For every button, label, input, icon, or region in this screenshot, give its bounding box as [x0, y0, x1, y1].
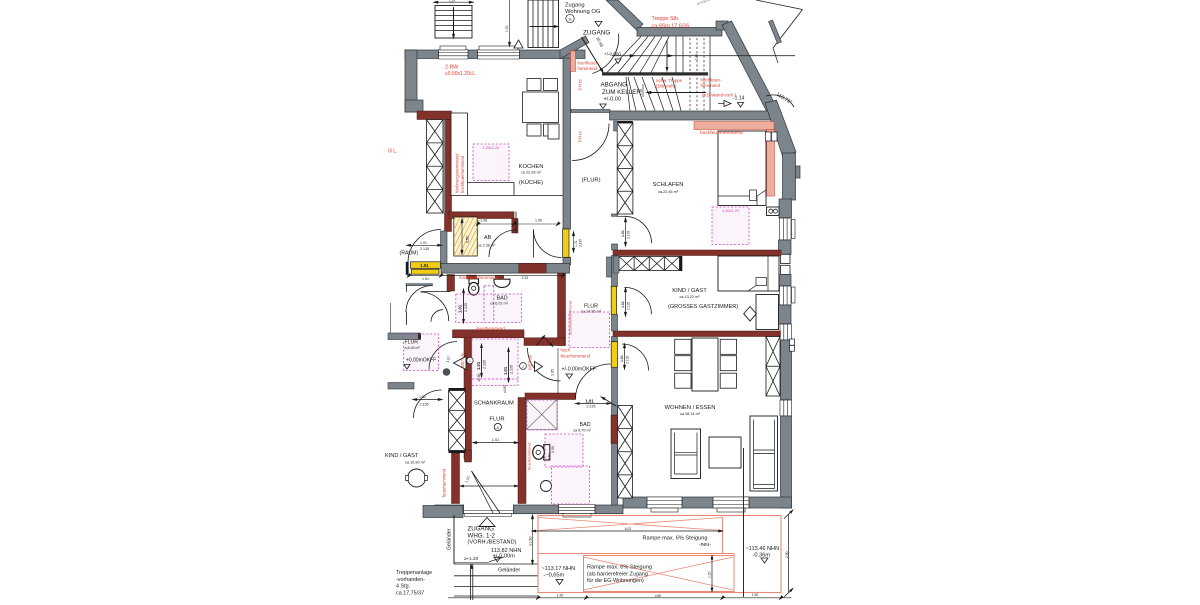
svg-text:-neu-: -neu-	[699, 542, 711, 548]
svg-text:≥1.50: ≥1.50	[528, 537, 532, 546]
svg-text:WET ds: WET ds	[460, 353, 465, 368]
svg-text:1.01: 1.01	[458, 304, 463, 313]
svg-text:6.02: 6.02	[625, 527, 632, 531]
svg-text:A: A	[497, 426, 500, 430]
svg-text:feuerhemmend: feuerhemmend	[477, 326, 506, 331]
svg-text:1.20x1.20: 1.20x1.20	[722, 209, 739, 213]
svg-text:1.65: 1.65	[551, 369, 555, 376]
svg-text:hochfeuer-: hochfeuer-	[701, 78, 723, 83]
svg-text:0i L.: 0i L.	[388, 149, 397, 155]
svg-text:KIND / GAST: KIND / GAST	[672, 288, 707, 294]
svg-text:-~0,65m: -~0,65m	[544, 573, 565, 579]
svg-text:1.51: 1.51	[466, 236, 470, 243]
svg-text:1.50: 1.50	[505, 25, 509, 32]
svg-text:1.01: 1.01	[574, 240, 578, 247]
svg-text:Wohnungstrennwand: Wohnungstrennwand	[455, 153, 460, 193]
svg-text:1.01: 1.01	[419, 395, 426, 399]
svg-text:1.01: 1.01	[621, 230, 625, 237]
svg-text:2.RW: 2.RW	[445, 65, 459, 71]
svg-text:BAD: BAD	[580, 422, 591, 428]
svg-text:ca.9Stg.17.6/26: ca.9Stg.17.6/26	[652, 24, 690, 30]
svg-text:hemmend: hemmend	[701, 83, 721, 88]
svg-text:+/-0.00: +/-0.00	[604, 96, 622, 102]
svg-text:+/-0.000: +/-0.000	[604, 52, 621, 57]
svg-text:2.135: 2.135	[627, 302, 631, 310]
svg-text:SCHLAFEN: SCHLAFEN	[653, 182, 684, 188]
svg-text:FH rs: FH rs	[578, 78, 583, 90]
svg-text:ca 14.95 m²: ca 14.95 m²	[581, 310, 602, 314]
svg-text:WHG. 1-2: WHG. 1-2	[468, 532, 496, 539]
svg-text:≥0.90x1.20i.L.: ≥0.90x1.20i.L.	[445, 71, 476, 77]
svg-text:2: 2	[522, 365, 524, 369]
svg-text:1.01: 1.01	[503, 366, 508, 375]
svg-text:3.50: 3.50	[551, 446, 555, 453]
svg-text:3.50: 3.50	[548, 453, 552, 460]
svg-text:1.01: 1.01	[586, 398, 595, 403]
svg-text:FLUR: FLUR	[405, 340, 419, 346]
svg-text:ZUGANG: ZUGANG	[583, 30, 610, 37]
svg-text:feuerhemmend: feuerhemmend	[561, 354, 591, 359]
svg-text:~113.17 NHN: ~113.17 NHN	[542, 566, 576, 572]
svg-text:ca.28,14 m²: ca.28,14 m²	[680, 412, 701, 416]
svg-text:feuerhemmend: feuerhemmend	[527, 443, 532, 470]
svg-text:ca.13,22 m²: ca.13,22 m²	[679, 295, 700, 299]
svg-text:ca 9,70 m²: ca 9,70 m²	[573, 429, 592, 433]
svg-text:Rampe max. 6% Steigung: Rampe max. 6% Steigung	[587, 565, 652, 571]
svg-text:KOCHEN: KOCHEN	[519, 164, 544, 170]
svg-text:1.14: 1.14	[695, 54, 699, 60]
svg-text:≥0.80: ≥0.80	[503, 385, 507, 393]
svg-text:ca.6.02 m²: ca.6.02 m²	[490, 302, 509, 306]
svg-text:11: 11	[568, 17, 572, 21]
svg-text:Treppe Stb.: Treppe Stb.	[652, 16, 680, 22]
svg-text:1.01: 1.01	[621, 301, 625, 308]
svg-text:a.8.28 m²: a.8.28 m²	[405, 346, 421, 350]
svg-text:ca 22.28 m²: ca 22.28 m²	[521, 171, 542, 175]
svg-text:1.51: 1.51	[422, 277, 429, 281]
svg-text:~1.96: ~1.96	[478, 219, 487, 223]
svg-text:1.01: 1.01	[420, 263, 429, 268]
svg-text:(GROSSES GASTZIMMER): (GROSSES GASTZIMMER)	[668, 304, 738, 310]
svg-text:Zugang: Zugang	[565, 3, 585, 9]
svg-text:~113.46 NHN: ~113.46 NHN	[746, 546, 780, 552]
svg-text:(RAUM): (RAUM)	[400, 251, 419, 257]
svg-text:1.50: 1.50	[557, 593, 564, 597]
svg-text:AB: AB	[484, 235, 492, 241]
svg-text:2.135: 2.135	[464, 303, 468, 312]
svg-text:FLUR: FLUR	[489, 417, 504, 423]
svg-text:hemmend: hemmend	[578, 66, 598, 71]
svg-text:2.135: 2.135	[483, 360, 487, 369]
svg-text:ca 2.36 m²: ca 2.36 m²	[478, 244, 497, 248]
svg-text:≥+1.20: ≥+1.20	[464, 556, 479, 561]
svg-text:2.50: 2.50	[785, 551, 789, 558]
svg-text:(KÜCHE): (KÜCHE)	[519, 179, 543, 186]
svg-text:1.01: 1.01	[420, 241, 427, 245]
svg-text:+/-0.00mOKFF: +/-0.00mOKFF	[562, 367, 596, 373]
svg-text:(FLUR): (FLUR)	[582, 178, 601, 184]
svg-text:2.135: 2.135	[587, 405, 596, 409]
svg-text:1: 1	[469, 359, 471, 363]
svg-text:Treppenanlage: Treppenanlage	[396, 570, 432, 576]
svg-text:ca.17,75/37: ca.17,75/37	[396, 590, 424, 596]
svg-text:ca.10,90 m²: ca.10,90 m²	[405, 461, 426, 465]
svg-text:hochfeuerhemmend: hochfeuerhemmend	[460, 155, 465, 193]
svg-text:1.50: 1.50	[535, 219, 542, 223]
svg-text:1.01: 1.01	[476, 361, 481, 370]
svg-text:2.135: 2.135	[626, 356, 630, 364]
svg-text:1.20x1.20: 1.20x1.20	[483, 146, 500, 150]
svg-text:WOHNEN / ESSEN: WOHNEN / ESSEN	[665, 405, 716, 411]
svg-text:2.135: 2.135	[510, 365, 514, 374]
svg-text:2.135: 2.135	[579, 239, 583, 247]
svg-text:ZUM KELLER: ZUM KELLER	[602, 89, 641, 96]
svg-text:hochfeuer-: hochfeuer-	[578, 61, 600, 66]
svg-text:WET ds: WET ds	[528, 355, 533, 370]
svg-text:hochfeuerhemmend: hochfeuerhemmend	[700, 130, 743, 136]
svg-text:Rampe max. 6% Steigung: Rampe max. 6% Steigung	[643, 536, 708, 542]
svg-text:≥0.80: ≥0.80	[477, 373, 481, 381]
svg-text:(Stb vorh.): (Stb vorh.)	[656, 84, 677, 89]
svg-text:KIND / GAST: KIND / GAST	[385, 453, 419, 459]
svg-text:Geländer: Geländer	[447, 528, 453, 550]
svg-text:2.135: 2.135	[627, 231, 631, 239]
svg-text:ABGANG: ABGANG	[601, 82, 628, 89]
svg-text:-vorhanden-: -vorhanden-	[396, 577, 425, 583]
svg-text:hoch: hoch	[561, 348, 571, 353]
svg-text:1.20: 1.20	[449, 0, 455, 3]
svg-text:(VORH./BESTAND): (VORH./BESTAND)	[468, 540, 517, 546]
svg-text:SCHANKRAUM: SCHANKRAUM	[474, 401, 514, 407]
svg-text:Geländer: Geländer	[498, 568, 520, 574]
svg-text:4.80: 4.80	[655, 594, 662, 598]
svg-text:1.20: 1.20	[708, 571, 712, 578]
svg-text:nchw. Treppe: nchw. Treppe	[656, 78, 683, 83]
svg-text:+0.00mOKFF: +0.00mOKFF	[406, 358, 436, 364]
svg-text:1.01: 1.01	[620, 355, 624, 362]
svg-text:für die EG-Wohnungen): für die EG-Wohnungen)	[587, 578, 644, 584]
svg-text:3.31: 3.31	[522, 276, 529, 280]
svg-text:2.135: 2.135	[420, 247, 429, 251]
svg-text:ca.22,45 m²: ca.22,45 m²	[658, 190, 679, 194]
svg-text:4 Stg.: 4 Stg.	[396, 584, 410, 590]
svg-text:1.50: 1.50	[752, 593, 759, 597]
svg-text:FH rs: FH rs	[578, 130, 583, 142]
svg-text:2.135: 2.135	[420, 403, 429, 407]
svg-text:feuerhemmend: feuerhemmend	[442, 468, 447, 497]
svg-text:(KS-Wand vorh.): (KS-Wand vorh.)	[702, 93, 737, 98]
svg-text:hochfeuerhemmend: hochfeuerhemmend	[569, 301, 573, 335]
svg-text:1.51: 1.51	[492, 438, 499, 442]
svg-text:(als barrierefreier Zugang: (als barrierefreier Zugang	[587, 571, 648, 577]
